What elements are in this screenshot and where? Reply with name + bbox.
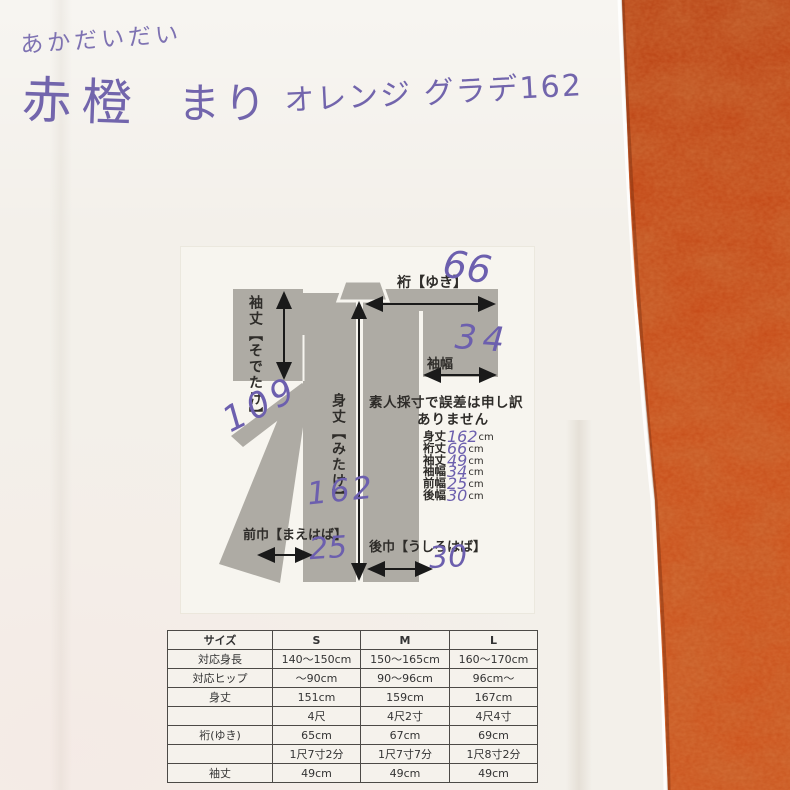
size-table-row: 対応ヒップ〜90cm90〜96cm96cm〜: [168, 669, 538, 688]
handwritten-orange-grade-note: オレンジ グラデ162: [283, 60, 584, 120]
size-table-row: 1尺7寸2分1尺7寸7分1尺8寸2分: [168, 745, 538, 764]
size-table-row: 裄(ゆき)65cm67cm69cm: [168, 726, 538, 745]
size-table-cell: 67cm: [361, 726, 450, 745]
ushirohaba-handwritten-value: 30: [428, 539, 468, 576]
size-table-cell: 49cm: [361, 764, 450, 783]
size-table-cell: 4尺: [273, 707, 361, 726]
size-table-cell: 96cm〜: [450, 669, 538, 688]
maehaba-handwritten-value: 25: [308, 530, 349, 568]
size-table-row: 袖丈49cm49cm49cm: [168, 764, 538, 783]
size-table-cell: 69cm: [450, 726, 538, 745]
disclaimer-line2: ありません: [417, 408, 489, 428]
paper-crease: [566, 420, 592, 790]
measurement-list: 身丈162cm裄丈66cm袖丈49cm袖幅34cm前幅25cm後幅30cm: [423, 429, 494, 500]
size-table-cell: 1尺7寸2分: [273, 745, 361, 764]
measurement-row: 後幅30cm: [423, 488, 494, 500]
size-table-cell: 159cm: [361, 688, 450, 707]
size-table-cell: 49cm: [273, 764, 361, 783]
handwritten-color-name: 赤橙: [21, 60, 143, 136]
size-table-cell: 1尺7寸7分: [361, 745, 450, 764]
size-chart-table: サイズSML対応身長140〜150cm150〜165cm160〜170cm対応ヒ…: [167, 630, 538, 783]
measurement-handwritten-value: 30: [447, 490, 467, 502]
size-table-header-cell: M: [361, 631, 450, 650]
mitake-handwritten-value: 162: [305, 470, 377, 513]
size-table-header-cell: サイズ: [168, 631, 273, 650]
size-table-cell: 4尺2寸: [361, 707, 450, 726]
size-table-cell: 袖丈: [168, 764, 273, 783]
size-table-header-cell: L: [450, 631, 538, 650]
size-table-cell: 140〜150cm: [273, 650, 361, 669]
size-table-cell: [168, 707, 273, 726]
size-table-cell: 身丈: [168, 688, 273, 707]
size-table-row: 身丈151cm159cm167cm: [168, 688, 538, 707]
size-table-cell: 4尺4寸: [450, 707, 538, 726]
size-table-cell: 〜90cm: [273, 669, 361, 688]
size-table-header-row: サイズSML: [168, 631, 538, 650]
size-table-cell: 1尺8寸2分: [450, 745, 538, 764]
size-table-header-cell: S: [273, 631, 361, 650]
size-table-cell: 150〜165cm: [361, 650, 450, 669]
size-table-row: 対応身長140〜150cm150〜165cm160〜170cm: [168, 650, 538, 669]
measurement-unit: cm: [468, 491, 483, 502]
handwritten-item-name: まり: [178, 70, 270, 131]
handwritten-reading-note: あかだいだい: [19, 14, 183, 59]
kimono-measurement-diagram: 裄【ゆき】 66 袖丈【そでたけ】 袖幅 34 身丈【みたけ】 162 109 …: [181, 247, 534, 613]
sodehaba-label: 袖幅: [427, 353, 453, 372]
size-table-cell: [168, 745, 273, 764]
size-table-cell: 65cm: [273, 726, 361, 745]
size-table-cell: 160〜170cm: [450, 650, 538, 669]
size-table-cell: 90〜96cm: [361, 669, 450, 688]
size-table-cell: 167cm: [450, 688, 538, 707]
size-table-cell: 151cm: [273, 688, 361, 707]
size-table-cell: 裄(ゆき): [168, 726, 273, 745]
size-table-cell: 49cm: [450, 764, 538, 783]
measurement-label: 後幅: [423, 488, 446, 502]
size-table-cell: 対応身長: [168, 650, 273, 669]
size-table-row: 4尺4尺2寸4尺4寸: [168, 707, 538, 726]
yuki-handwritten-value: 66: [440, 241, 495, 292]
sodehaba-handwritten-value: 34: [454, 317, 512, 361]
size-table-cell: 対応ヒップ: [168, 669, 273, 688]
kimono-size-sheet-photo: あかだいだい 赤橙 まり オレンジ グラデ162: [0, 0, 790, 790]
